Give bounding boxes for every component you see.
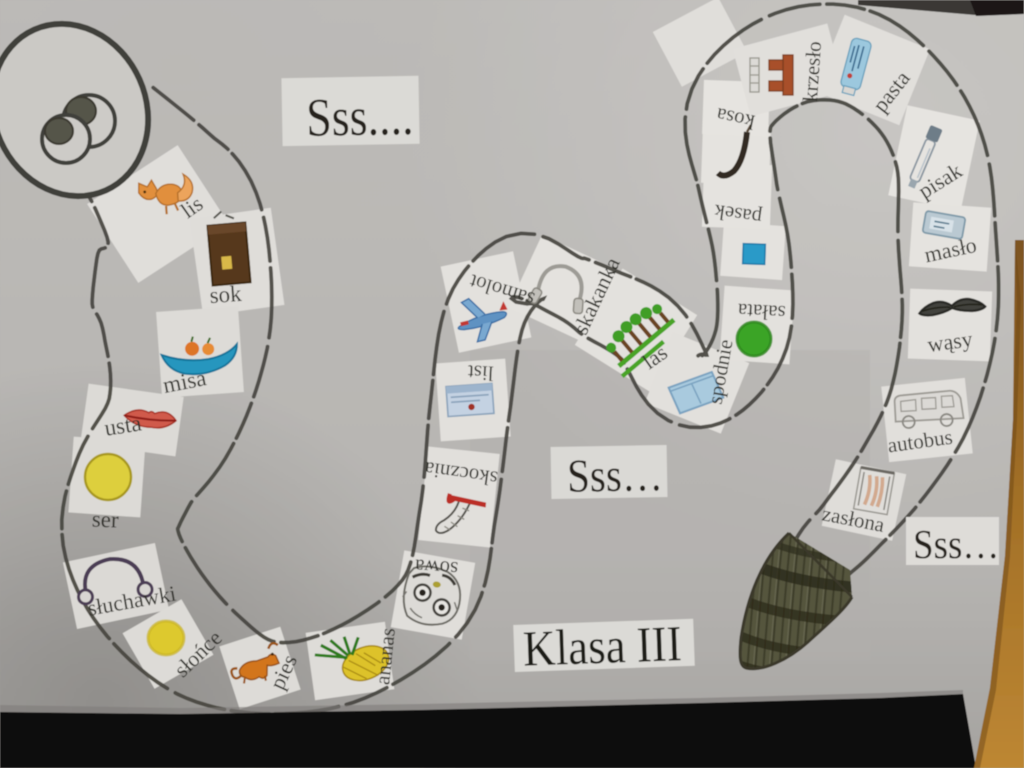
svg-text:ser: ser (91, 507, 119, 533)
svg-text:krzesło: krzesło (798, 40, 826, 102)
svg-text:Klasa III: Klasa III (522, 616, 682, 677)
svg-text:list: list (467, 360, 494, 385)
svg-text:Sss....: Sss.... (306, 85, 414, 147)
svg-text:Sss…: Sss… (567, 448, 664, 502)
svg-text:sałata: sałata (736, 299, 786, 326)
svg-text:Sss…: Sss… (913, 522, 999, 567)
svg-text:sok: sok (209, 281, 243, 308)
svg-text:sowa: sowa (413, 554, 458, 581)
